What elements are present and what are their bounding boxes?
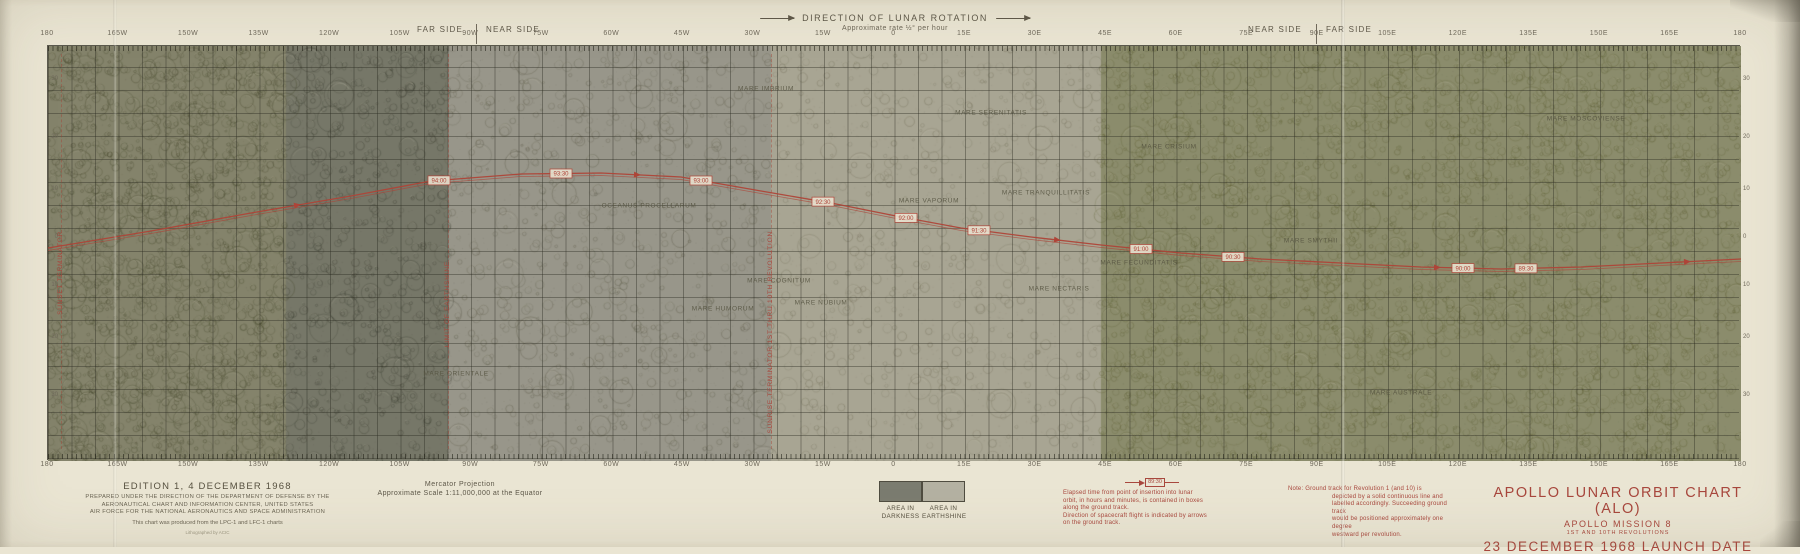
longitude-label: 105W: [390, 461, 410, 468]
elapsed-time-box: 90:00: [1452, 264, 1474, 273]
longitude-label: 135W: [248, 30, 268, 37]
bottom-right-corner-shadow: [1760, 521, 1800, 547]
longitude-label: 105W: [390, 30, 410, 37]
longitude-label: 165W: [107, 30, 127, 37]
sample-time-box: 89:30: [1145, 478, 1165, 487]
longitude-label: 165E: [1660, 461, 1678, 468]
edition-fine-print-3: AIR FORCE FOR THE NATIONAL AERONAUTICS A…: [85, 509, 330, 517]
ground-track-rev10: [48, 176, 1741, 272]
longitude-label: 45E: [1098, 461, 1112, 468]
top-right-corner-shadow: [1730, 0, 1800, 22]
longitude-label: 165W: [107, 461, 127, 468]
longitude-label: 15E: [957, 461, 971, 468]
elapsed-time-box: 93:30: [550, 169, 572, 178]
latitude-label: 30: [44, 392, 58, 398]
longitude-label: 75W: [533, 461, 549, 468]
mission-name: APOLLO MISSION 8: [1468, 519, 1768, 529]
time-box-sample-icon: 89:30: [1063, 478, 1241, 487]
longitude-label: 105E: [1378, 461, 1396, 468]
longitude-label: 90E: [1310, 461, 1324, 468]
longitude-label: 45W: [674, 30, 690, 37]
latitude-label: 0: [1743, 234, 1757, 240]
longitude-label: 90E: [1310, 30, 1324, 37]
longitude-label: 120E: [1449, 30, 1467, 37]
longitude-label: 135E: [1519, 461, 1537, 468]
svg-text:90:00: 90:00: [1455, 266, 1471, 272]
longitude-label: 60E: [1169, 461, 1183, 468]
svg-text:94:00: 94:00: [431, 179, 447, 185]
chart-title-block: APOLLO LUNAR ORBIT CHART (ALO) APOLLO MI…: [1468, 485, 1768, 554]
ground-note-text: Note: Ground track for Revolution 1 (and…: [1288, 486, 1460, 539]
longitude-label: 150W: [178, 30, 198, 37]
latitude-label: 30: [44, 76, 58, 82]
longitude-label: 180: [40, 30, 53, 37]
longitude-label: 120W: [319, 461, 339, 468]
ground-track-overlay: 94:0093:3093:0092:3092:0091:3091:0090:30…: [48, 46, 1741, 461]
longitude-label: 120E: [1449, 461, 1467, 468]
projection-block: Mercator Projection Approximate Scale 1:…: [330, 481, 590, 497]
longitude-label: 90W: [462, 461, 478, 468]
elapsed-time-box: 93:00: [690, 176, 712, 185]
latitude-labels-left: 3020100102030: [30, 45, 44, 460]
svg-text:91:00: 91:00: [1133, 247, 1149, 253]
elapsed-time-box: 92:00: [895, 213, 917, 222]
svg-text:93:00: 93:00: [693, 179, 709, 185]
longitude-label: 105E: [1378, 30, 1396, 37]
rotation-arrow-right-icon: [996, 18, 1030, 19]
longitude-label: 30W: [744, 461, 760, 468]
longitude-label: 45W: [674, 461, 690, 468]
longitude-label: 60W: [603, 461, 619, 468]
rotation-arrow-left-icon: [760, 18, 794, 19]
longitude-label: 45E: [1098, 30, 1112, 37]
svg-text:92:30: 92:30: [815, 200, 831, 206]
projection-name: Mercator Projection: [330, 481, 590, 488]
latitude-label: 20: [44, 134, 58, 140]
longitude-label: 0: [891, 30, 895, 37]
edition-block: EDITION 1, 4 DECEMBER 1968 PREPARED UNDE…: [85, 481, 330, 535]
ground-track-note: Note: Ground track for Revolution 1 (and…: [1288, 486, 1460, 539]
revolutions-note: 1ST AND 10TH REVOLUTIONS: [1468, 530, 1768, 536]
latitude-label: 20: [1743, 334, 1757, 340]
lunar-chart-map: MARE IMBRIUMMARE SERENITATISMARE CRISIUM…: [47, 45, 1740, 460]
latitude-label: 10: [1743, 282, 1757, 288]
projection-scale: Approximate Scale 1:11,000,000 at the Eq…: [330, 490, 590, 497]
elapsed-time-box: 89:30: [1515, 264, 1537, 273]
edition-title: EDITION 1, 4 DECEMBER 1968: [85, 481, 330, 492]
longitude-label: 150W: [178, 461, 198, 468]
longitude-label: 180: [1733, 30, 1746, 37]
longitude-label: 165E: [1660, 30, 1678, 37]
latitude-label: 20: [1743, 134, 1757, 140]
latitude-label: 20: [44, 334, 58, 340]
svg-text:91:30: 91:30: [971, 229, 987, 235]
svg-text:89:30: 89:30: [1518, 267, 1534, 273]
edition-produced-note: This chart was produced from the LPC-1 a…: [85, 520, 330, 526]
svg-text:92:00: 92:00: [898, 216, 914, 222]
right-edge-shadow: [1774, 0, 1800, 547]
earthshine-label: AREA IN EARTHSHINE: [922, 505, 965, 521]
longitude-label: 90W: [462, 30, 478, 37]
left-edge-shadow: [0, 0, 12, 547]
latitude-label: 0: [44, 234, 58, 240]
longitude-label: 75W: [533, 30, 549, 37]
latitude-label: 10: [1743, 186, 1757, 192]
longitude-labels-top: 180165W150W135W120W105W90W75W60W45W30W15…: [47, 30, 1740, 40]
longitude-label: 15W: [815, 30, 831, 37]
ground-track-rev1: [48, 173, 1741, 269]
longitude-labels-bottom: 180165W150W135W120W105W90W75W60W45W30W15…: [47, 461, 1740, 471]
longitude-label: 180: [1733, 461, 1746, 468]
longitude-label: 15E: [957, 30, 971, 37]
latitude-label: 10: [44, 186, 58, 192]
elapsed-time-box: 94:00: [428, 176, 450, 185]
elapsed-note-text: Elapsed time from point of insertion int…: [1063, 490, 1241, 528]
longitude-label: 135E: [1519, 30, 1537, 37]
longitude-label: 180: [40, 461, 53, 468]
elapsed-time-note: 89:30 Elapsed time from point of inserti…: [1063, 478, 1241, 528]
darkness-label: AREA IN DARKNESS: [879, 505, 922, 521]
edition-fine-print-2: AERONAUTICAL CHART AND INFORMATION CENTE…: [85, 502, 330, 510]
earthshine-swatch: [922, 481, 965, 502]
edition-litho-note: Lithographed by ACIC: [85, 530, 330, 535]
longitude-label: 30E: [1028, 461, 1042, 468]
longitude-label: 30W: [744, 30, 760, 37]
longitude-label: 0: [891, 461, 895, 468]
longitude-label: 150E: [1590, 461, 1608, 468]
elapsed-time-box: 91:30: [968, 226, 990, 235]
elapsed-time-box: 91:00: [1130, 245, 1152, 254]
longitude-label: 75E: [1239, 30, 1253, 37]
longitude-label: 60W: [603, 30, 619, 37]
edition-fine-print-1: PREPARED UNDER THE DIRECTION OF THE DEPA…: [85, 494, 330, 502]
direction-title: DIRECTION OF LUNAR ROTATION: [802, 13, 988, 23]
latitude-label: 30: [1743, 392, 1757, 398]
latitude-label: 10: [44, 282, 58, 288]
longitude-label: 135W: [248, 461, 268, 468]
svg-text:90:30: 90:30: [1225, 255, 1241, 261]
longitude-label: 60E: [1169, 30, 1183, 37]
chart-title: APOLLO LUNAR ORBIT CHART (ALO): [1468, 485, 1768, 517]
longitude-label: 30E: [1028, 30, 1042, 37]
darkness-swatch: [879, 481, 922, 502]
shading-legend: AREA IN DARKNESS AREA IN EARTHSHINE: [879, 481, 965, 521]
elapsed-time-box: 90:30: [1222, 252, 1244, 261]
longitude-label: 15W: [815, 461, 831, 468]
longitude-label: 120W: [319, 30, 339, 37]
latitude-labels-right: 3020100102030: [1743, 45, 1757, 460]
latitude-label: 30: [1743, 76, 1757, 82]
svg-text:93:30: 93:30: [553, 172, 569, 178]
elapsed-time-box: 92:30: [812, 197, 834, 206]
longitude-label: 150E: [1590, 30, 1608, 37]
longitude-label: 75E: [1239, 461, 1253, 468]
